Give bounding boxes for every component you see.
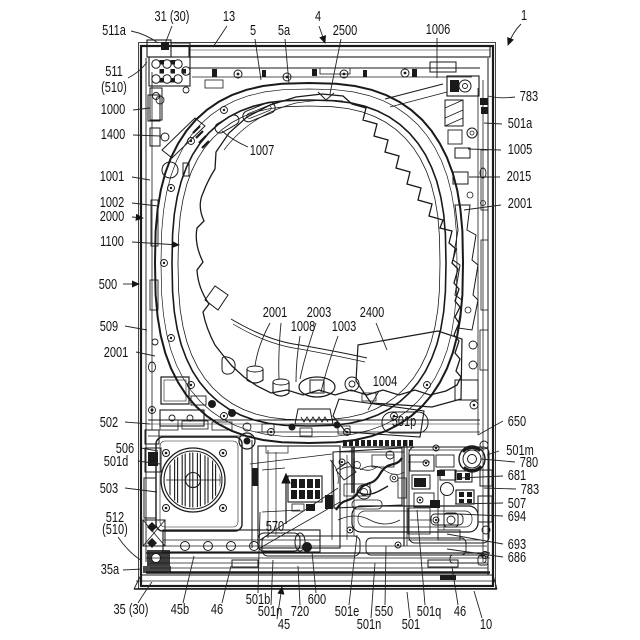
svg-text:46: 46 [211, 602, 223, 618]
svg-text:720: 720 [291, 604, 309, 620]
svg-text:1006: 1006 [426, 22, 451, 38]
svg-text:35a: 35a [101, 562, 120, 578]
svg-text:511a: 511a [102, 23, 126, 39]
svg-text:1008: 1008 [291, 319, 316, 335]
svg-text:5a: 5a [278, 23, 291, 39]
svg-text:1001: 1001 [100, 169, 125, 185]
svg-text:501n: 501n [357, 617, 382, 633]
svg-text:35 (30): 35 (30) [114, 602, 149, 618]
svg-text:45: 45 [278, 617, 290, 633]
svg-text:1004: 1004 [373, 374, 398, 390]
svg-text:2400: 2400 [360, 305, 385, 321]
svg-text:1005: 1005 [508, 142, 533, 158]
svg-text:4: 4 [315, 9, 321, 25]
svg-text:2001: 2001 [104, 345, 129, 361]
svg-text:2001: 2001 [263, 305, 288, 321]
svg-text:1400: 1400 [101, 127, 126, 143]
svg-text:(510): (510) [102, 522, 128, 538]
svg-text:509: 509 [100, 319, 118, 335]
svg-text:501: 501 [402, 617, 420, 633]
svg-text:783: 783 [520, 89, 538, 105]
svg-text:5: 5 [250, 23, 256, 39]
svg-text:694: 694 [508, 509, 526, 525]
svg-text:501d: 501d [104, 454, 129, 470]
svg-text:13: 13 [223, 9, 235, 25]
svg-text:1003: 1003 [332, 319, 357, 335]
svg-text:1: 1 [521, 8, 527, 24]
svg-text:503: 503 [100, 481, 118, 497]
svg-text:2001: 2001 [508, 196, 533, 212]
svg-text:511: 511 [105, 64, 123, 80]
svg-text:501a: 501a [508, 116, 533, 132]
svg-text:1100: 1100 [100, 234, 124, 250]
svg-text:1007: 1007 [250, 143, 275, 159]
svg-text:2500: 2500 [333, 23, 358, 39]
svg-text:501p: 501p [392, 414, 417, 430]
svg-text:502: 502 [100, 415, 118, 431]
svg-text:501q: 501q [417, 604, 442, 620]
svg-text:2015: 2015 [507, 169, 532, 185]
svg-text:10: 10 [480, 617, 492, 633]
svg-text:600: 600 [308, 592, 326, 608]
svg-text:2000: 2000 [100, 209, 125, 225]
svg-text:45b: 45b [171, 602, 189, 618]
svg-text:650: 650 [508, 414, 526, 430]
svg-text:(510): (510) [101, 80, 127, 96]
svg-text:570: 570 [266, 519, 284, 535]
svg-text:46: 46 [454, 604, 466, 620]
svg-text:500: 500 [99, 277, 117, 293]
svg-text:501e: 501e [335, 604, 360, 620]
svg-text:31 (30): 31 (30) [155, 9, 190, 25]
svg-text:1000: 1000 [101, 102, 126, 118]
svg-text:686: 686 [508, 550, 526, 566]
